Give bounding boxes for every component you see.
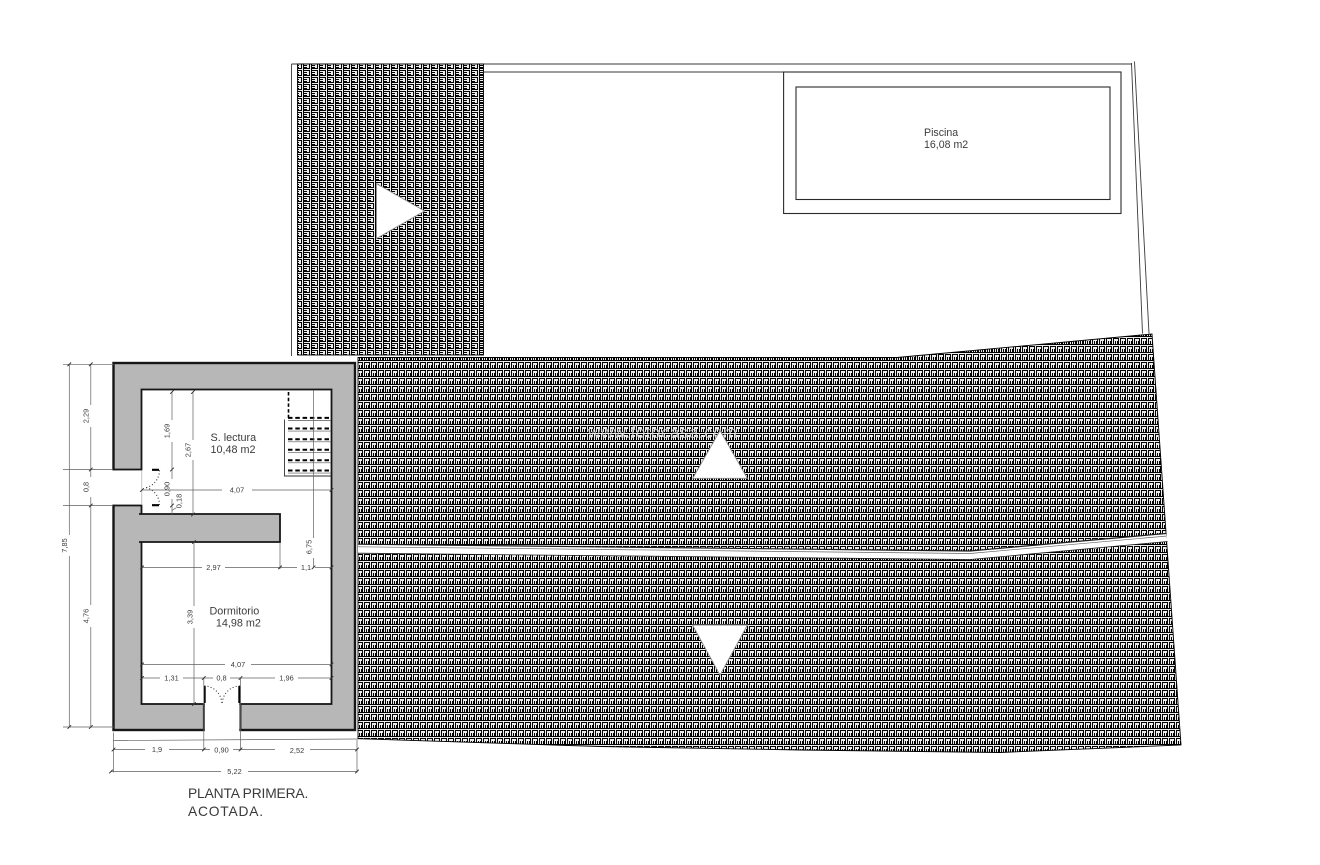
svg-text:PLANTA PRIMERA.: PLANTA PRIMERA. [188, 786, 308, 801]
svg-text:6,75: 6,75 [304, 540, 313, 554]
svg-text:4,07: 4,07 [230, 486, 244, 495]
svg-text:0,18: 0,18 [175, 494, 184, 508]
svg-text:7,85: 7,85 [60, 538, 69, 552]
svg-text:3,39: 3,39 [185, 610, 194, 624]
svg-text:1,9: 1,9 [152, 745, 162, 754]
svg-text:ACOTADA.: ACOTADA. [188, 804, 264, 819]
svg-text:Piscina: Piscina [924, 127, 958, 139]
svg-text:1,31: 1,31 [164, 674, 178, 683]
svg-text:0,8: 0,8 [216, 674, 226, 683]
svg-text:4,07: 4,07 [231, 660, 245, 669]
svg-text:2,97: 2,97 [206, 563, 220, 572]
svg-text:1,69: 1,69 [163, 424, 172, 438]
svg-text:2,67: 2,67 [184, 443, 193, 457]
svg-text:S. lectura: S. lectura [211, 432, 257, 444]
svg-text:5,22: 5,22 [227, 767, 241, 776]
svg-text:2,29: 2,29 [81, 409, 90, 423]
svg-text:0,8: 0,8 [81, 482, 90, 492]
svg-text:16,08 m2: 16,08 m2 [924, 139, 968, 151]
svg-text:10,48 m2: 10,48 m2 [211, 444, 256, 456]
svg-text:Dormitorio: Dormitorio [210, 606, 260, 618]
svg-text:0,90: 0,90 [214, 746, 228, 755]
svg-text:4,76: 4,76 [81, 609, 90, 623]
svg-text:14,98 m2: 14,98 m2 [216, 618, 261, 630]
svg-text:1,1: 1,1 [301, 563, 311, 572]
svg-text:0,90: 0,90 [163, 482, 172, 496]
svg-text:1,96: 1,96 [279, 674, 293, 683]
svg-text:2,52: 2,52 [290, 746, 304, 755]
